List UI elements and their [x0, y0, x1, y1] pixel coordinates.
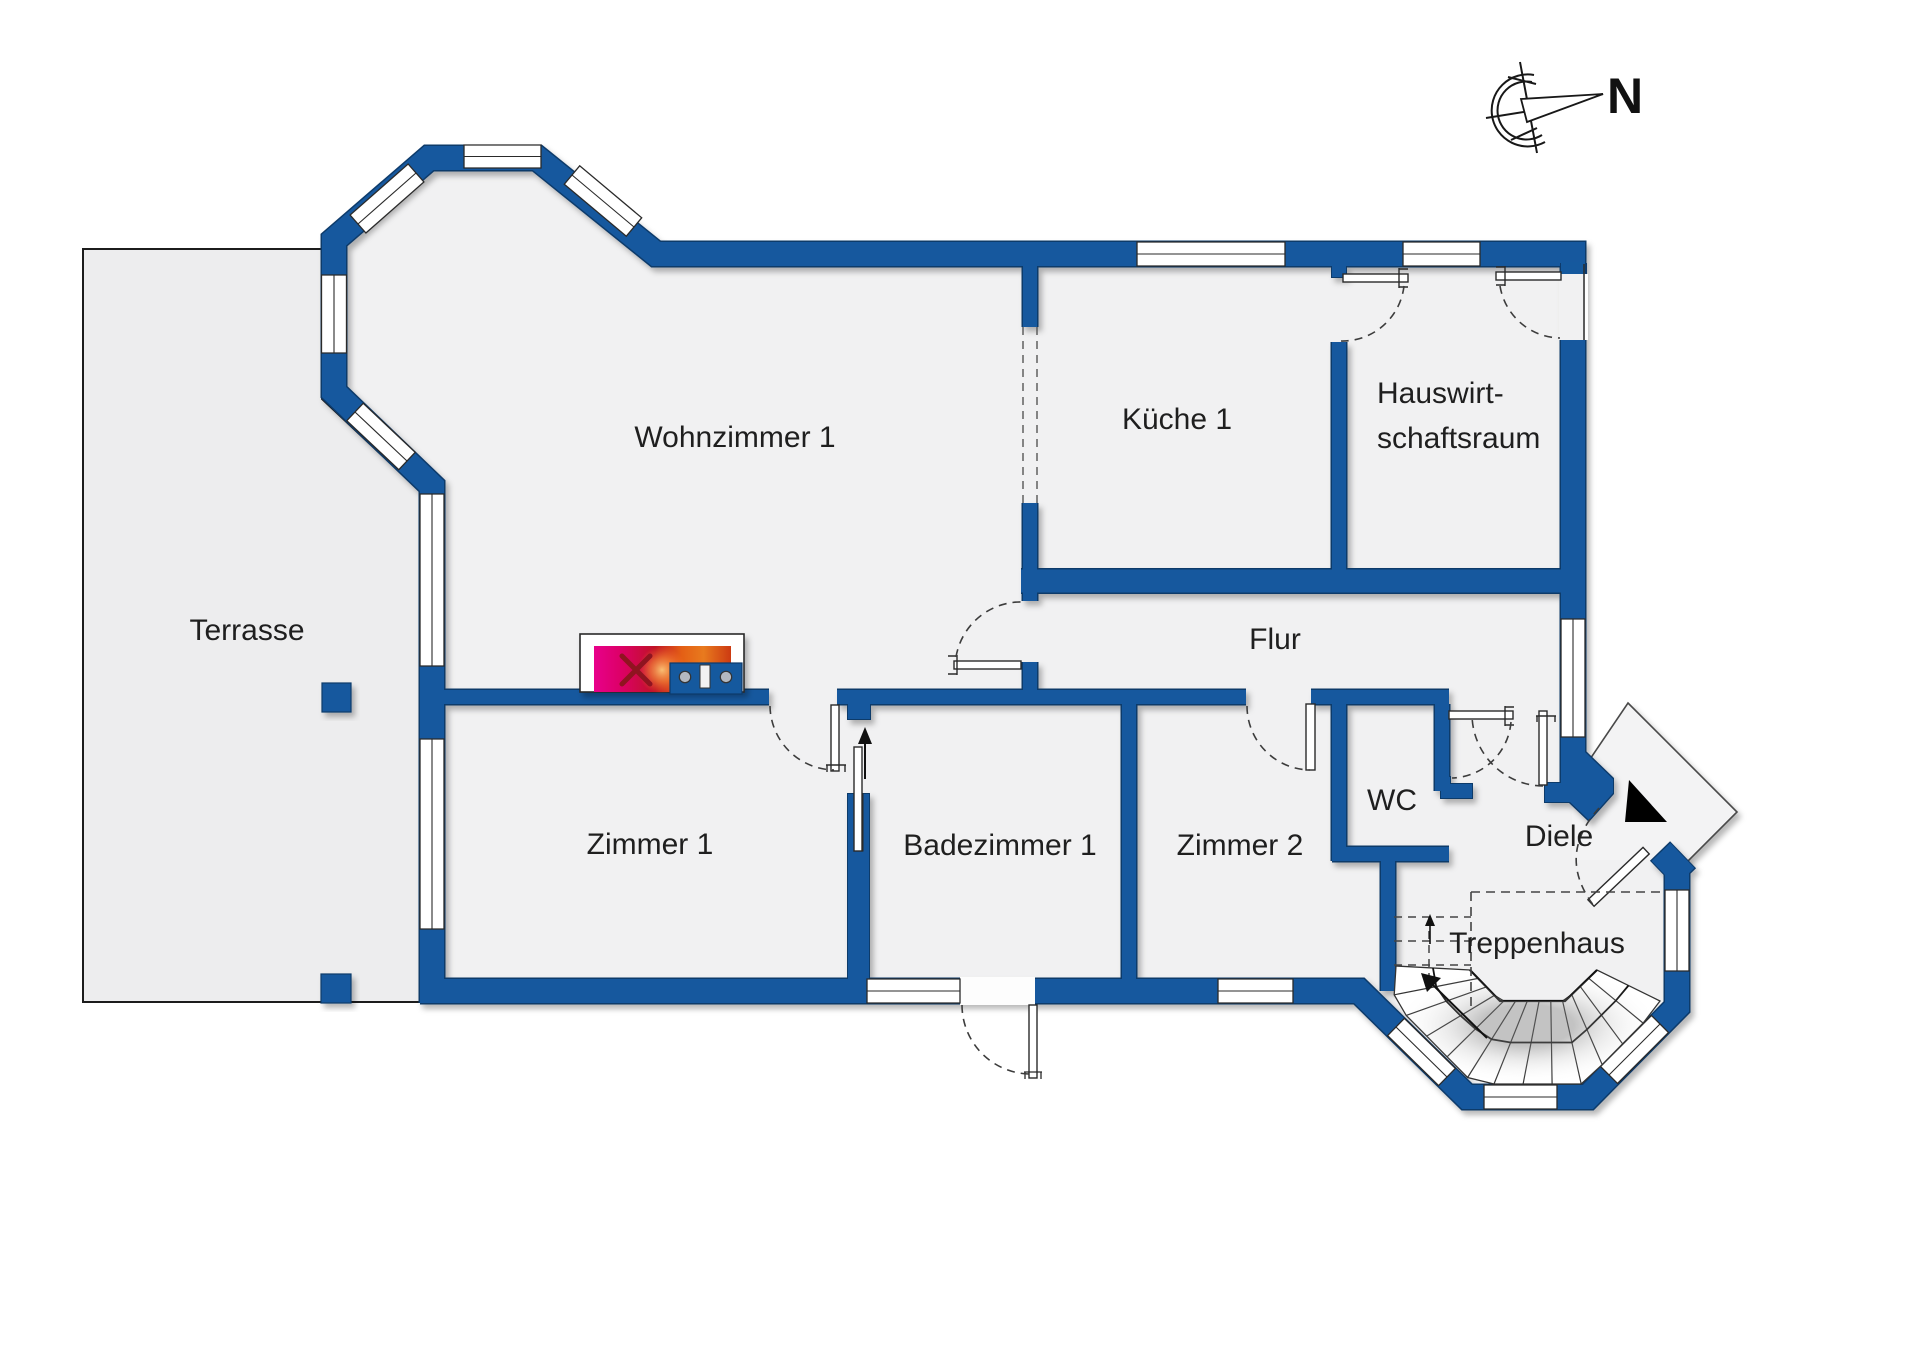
svg-text:Flur: Flur — [1249, 623, 1301, 656]
svg-text:WC: WC — [1367, 784, 1417, 817]
svg-text:Treppenhaus: Treppenhaus — [1449, 927, 1625, 960]
svg-text:Wohnzimmer 1: Wohnzimmer 1 — [634, 421, 835, 454]
svg-text:Badezimmer 1: Badezimmer 1 — [903, 829, 1096, 862]
svg-text:Küche 1: Küche 1 — [1122, 403, 1232, 436]
svg-text:Hauswirt-: Hauswirt- — [1377, 377, 1504, 410]
svg-text:Zimmer 2: Zimmer 2 — [1177, 829, 1304, 862]
svg-text:Terrasse: Terrasse — [189, 614, 304, 647]
svg-text:N: N — [1607, 68, 1643, 124]
svg-text:Zimmer 1: Zimmer 1 — [587, 828, 714, 861]
svg-text:schaftsraum: schaftsraum — [1377, 422, 1540, 455]
svg-text:Diele: Diele — [1525, 820, 1593, 853]
